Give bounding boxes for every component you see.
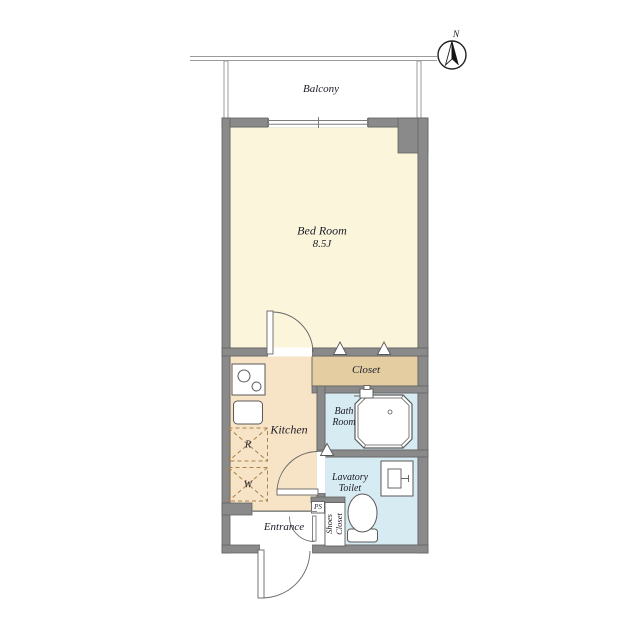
bathroom-label: Bath Room <box>332 406 355 428</box>
balcony-window <box>268 117 368 128</box>
kitchen-label: Kitchen <box>270 423 307 436</box>
bedroom-label: Bed Room <box>297 224 347 237</box>
pipe-space-label: PS <box>314 504 322 512</box>
bedroom-size-label: 8.5J <box>313 238 332 250</box>
floor-plan-svg <box>0 0 640 640</box>
shoes-closet-label: Shoes Closet <box>325 513 345 535</box>
sink-icon <box>234 401 263 424</box>
entrance-door <box>258 545 312 599</box>
refrigerator-label: R <box>245 440 251 451</box>
entrance-label: Entrance <box>264 521 304 533</box>
floor-plan: Balcony N Bed Room 8.5J Closet Kitchen B… <box>0 0 640 640</box>
toilet-icon <box>348 494 378 542</box>
closet-label: Closet <box>352 364 380 376</box>
washbasin-icon <box>381 461 413 496</box>
north-compass-icon <box>438 41 466 69</box>
stove-icon <box>232 364 265 395</box>
bathtub-icon <box>355 395 412 448</box>
north-label: N <box>453 30 459 40</box>
balcony-label: Balcony <box>303 83 339 95</box>
lavatory-label: Lavatory Toilet <box>332 472 368 494</box>
washer-label: W <box>244 480 252 491</box>
